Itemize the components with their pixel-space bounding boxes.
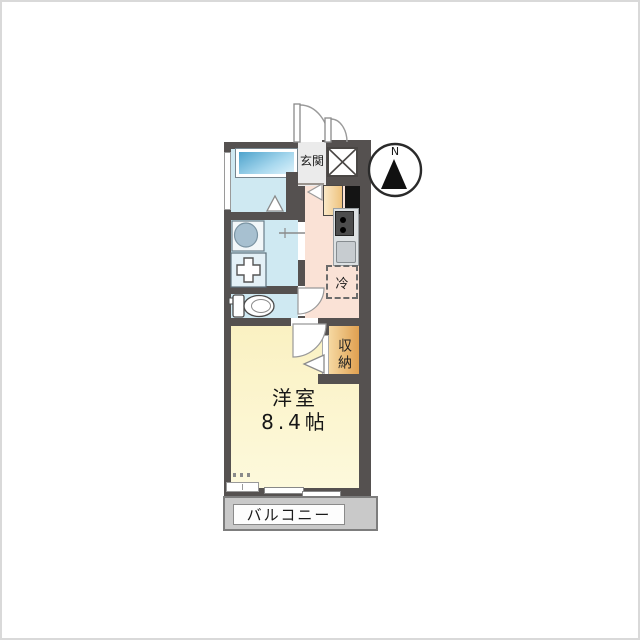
main-room-size: 8.4帖 xyxy=(231,410,359,434)
bathroom-window xyxy=(224,152,231,210)
closet-door-strip xyxy=(322,335,329,376)
balcony-label: バルコニー xyxy=(247,504,332,525)
entrance-label: 玄関 xyxy=(295,152,329,169)
window-tick-2 xyxy=(240,473,243,477)
small-window-divider xyxy=(242,484,243,490)
floor-plan-image: 冷 収納 バルコニー xyxy=(0,0,640,640)
pipe-shaft-box xyxy=(327,147,358,177)
main-room-name: 洋室 xyxy=(231,386,359,410)
balcony: バルコニー xyxy=(223,496,378,531)
compass-north-label: N xyxy=(387,145,403,158)
balcony-label-box: バルコニー xyxy=(233,504,345,525)
bathtub-water xyxy=(239,152,294,174)
sliding-window-pane-1 xyxy=(264,487,304,494)
toilet-door-opening xyxy=(298,286,305,316)
refrigerator-space: 冷 xyxy=(326,265,358,299)
main-room-label: 洋室 8.4帖 xyxy=(231,386,359,434)
bathroom-wall-stub xyxy=(286,172,298,220)
closet-label: 収納 xyxy=(331,334,357,376)
stove-burner-2 xyxy=(340,227,346,233)
refrigerator-label: 冷 xyxy=(335,273,348,292)
stove-burner-1 xyxy=(340,217,346,223)
toilet-floor xyxy=(231,294,298,318)
window-tick-1 xyxy=(233,473,236,477)
entrance-door-icon xyxy=(294,104,347,142)
entrance-step-line xyxy=(298,183,324,185)
washroom-floor xyxy=(231,220,298,286)
window-tick-3 xyxy=(247,473,250,477)
kitchen-sink xyxy=(336,241,356,263)
small-window xyxy=(226,482,259,492)
washroom-door-opening xyxy=(298,222,305,260)
